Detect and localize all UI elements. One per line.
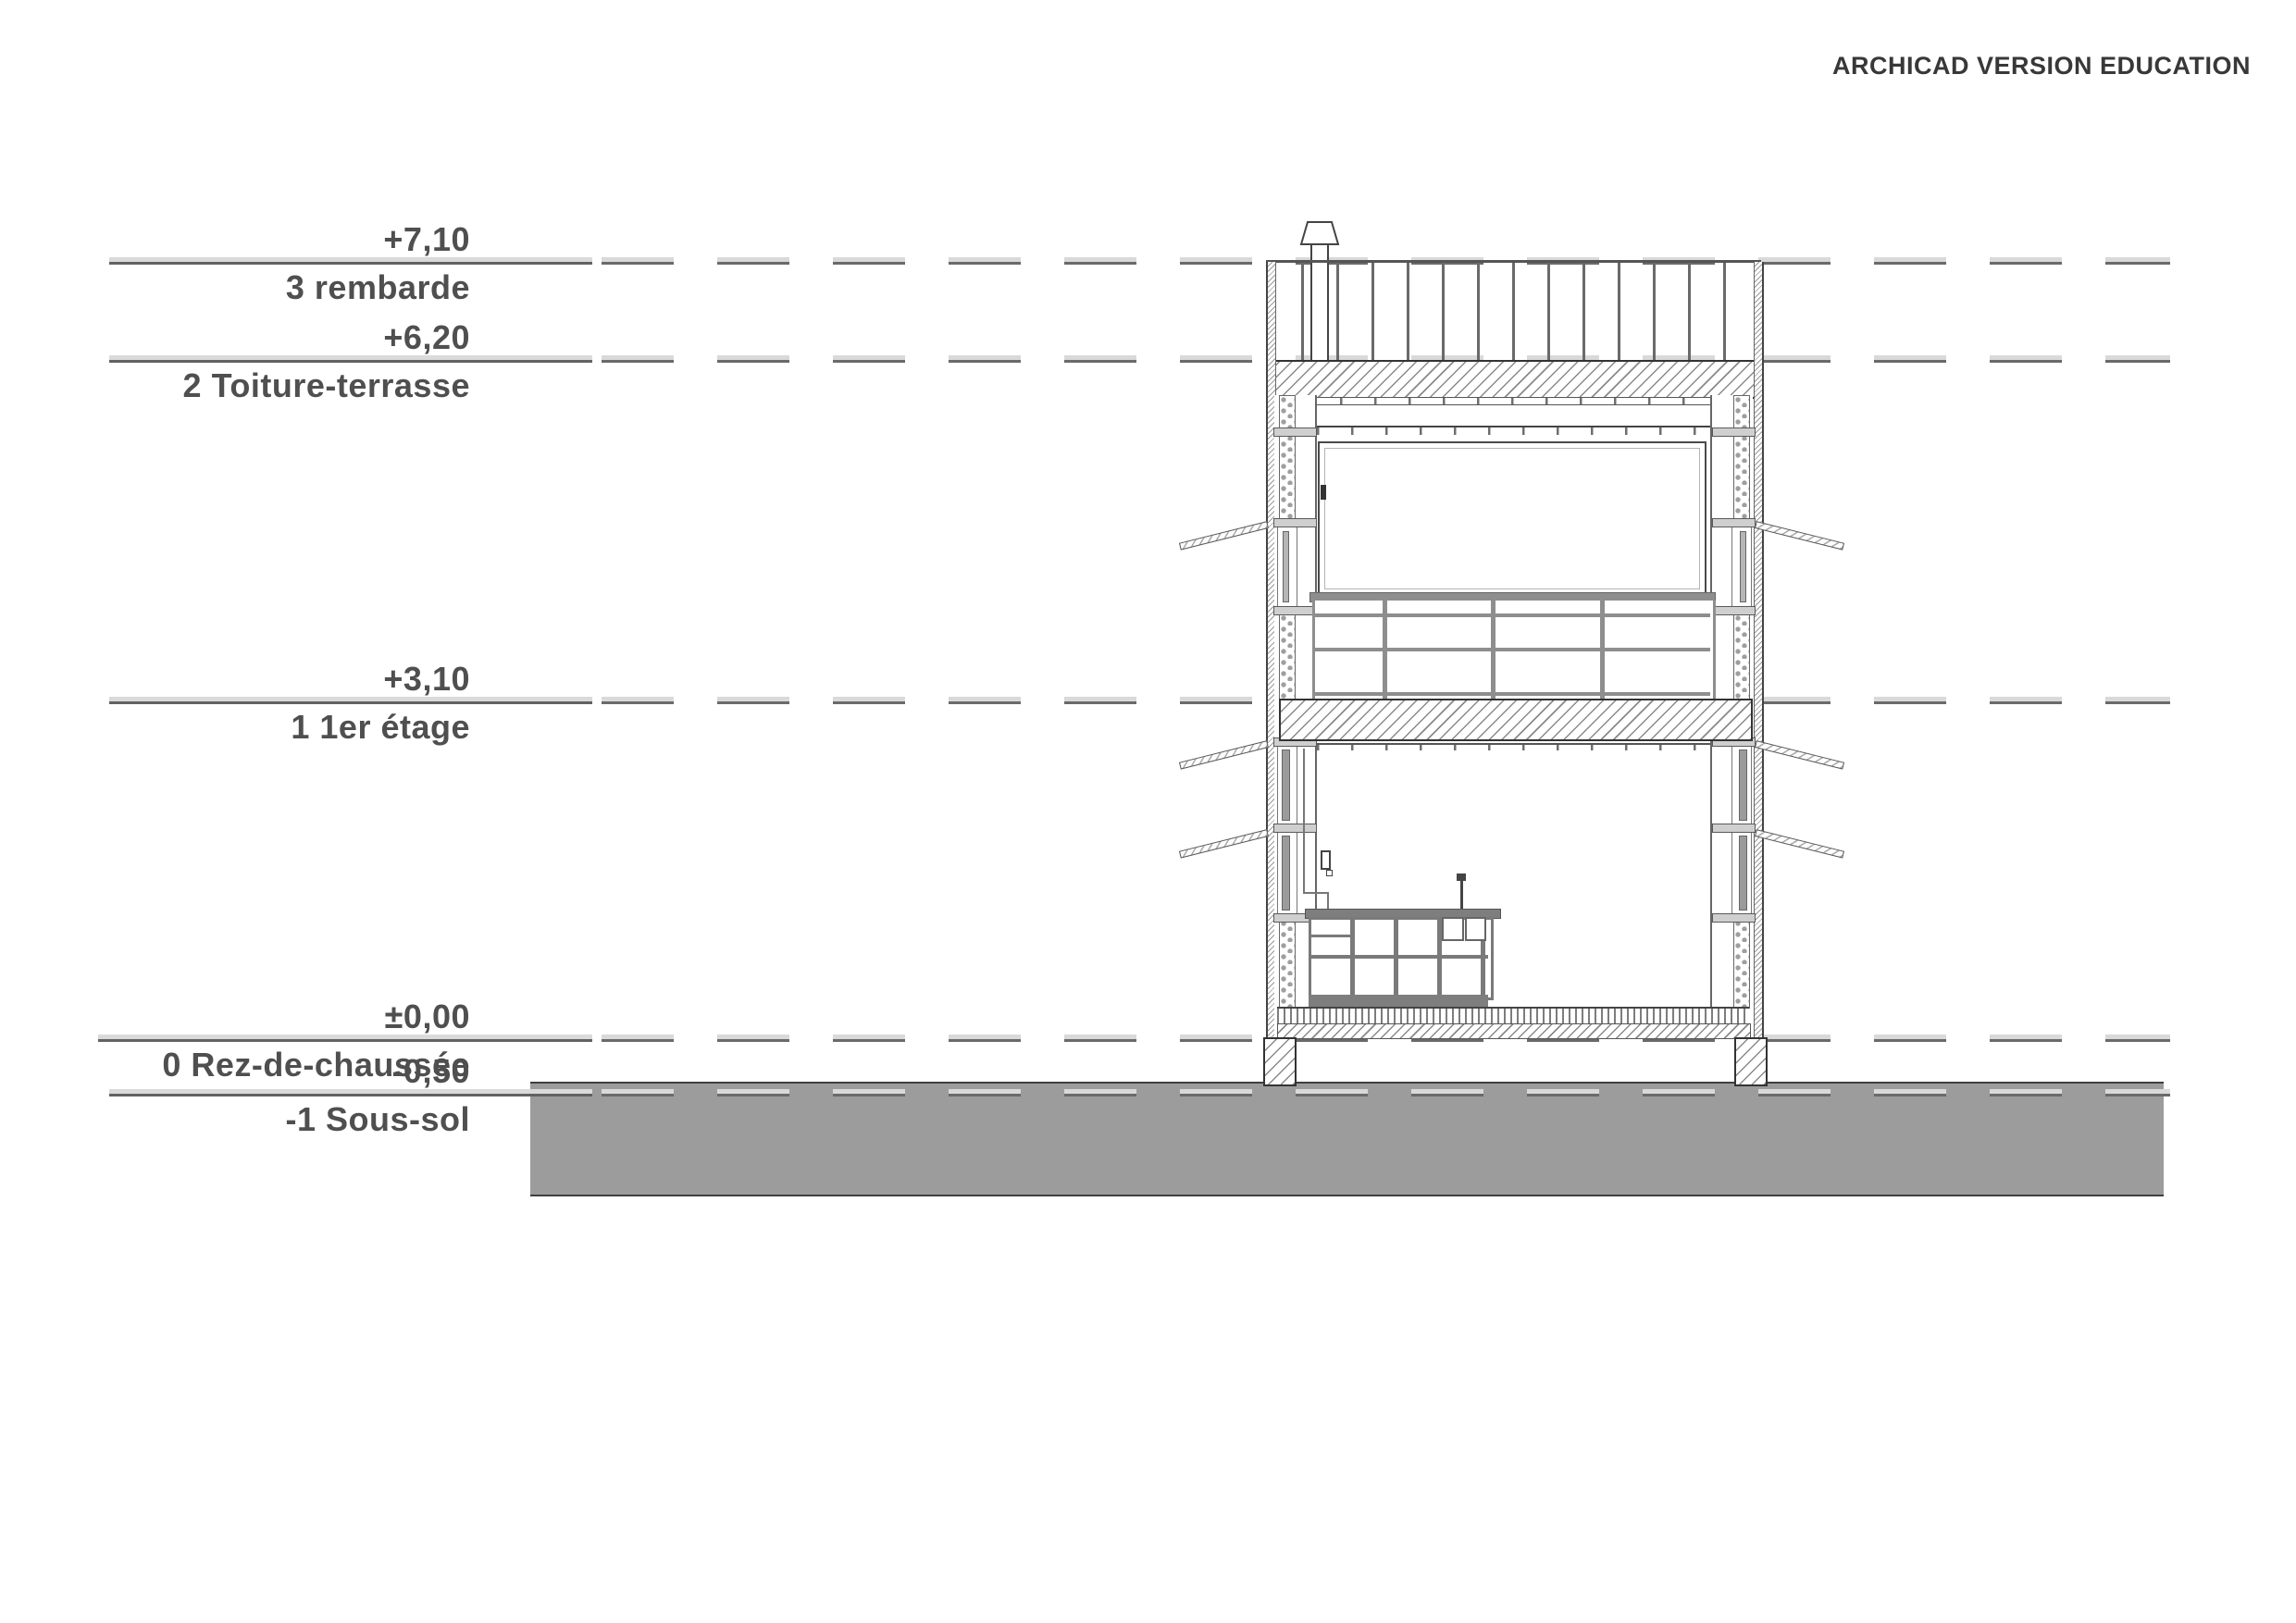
level-line-m050-dashes: [602, 1089, 2170, 1096]
level-value-m050[interactable]: -0,50: [56, 1053, 470, 1090]
level-name-m050[interactable]: -1 Sous-sol: [56, 1101, 470, 1138]
level-name-310[interactable]: 1 1er étage: [56, 709, 470, 746]
sunshade-fin-right-mid[interactable]: [1755, 740, 1844, 769]
upper-window-inner-frame: [1324, 448, 1700, 589]
level-value-000[interactable]: ±0,00: [56, 998, 470, 1035]
roof-slab[interactable]: [1266, 360, 1759, 399]
right-wall-tie-3: [1712, 606, 1756, 615]
kitchen-drawer-line: [1311, 935, 1350, 937]
kitchen-sink-basin-2: [1465, 917, 1486, 941]
level-line-710-solid: [109, 257, 592, 265]
level-value-310[interactable]: +3,10: [56, 661, 470, 698]
left-wall-tie-1: [1273, 427, 1317, 437]
kitchen-cabinet-shelf: [1309, 955, 1488, 959]
footing-pier-right[interactable]: [1734, 1037, 1768, 1086]
balustrade-rail-1: [1312, 613, 1710, 617]
education-watermark: ARCHICAD VERSION EDUCATION: [1832, 52, 2251, 81]
gf-floor-slab[interactable]: [1277, 1023, 1751, 1039]
chimney-cap: [1301, 222, 1338, 244]
kitchen-plinth: [1309, 995, 1488, 1007]
roof-soffit: [1272, 397, 1750, 405]
left-wall-glazing-gf-2-mullion: [1282, 836, 1290, 911]
upper-ceiling: [1317, 426, 1710, 435]
sunshade-fin-left-lower[interactable]: [1179, 829, 1269, 858]
right-wall-tie-6: [1712, 913, 1756, 923]
sunshade-fin-right-lower[interactable]: [1755, 829, 1844, 858]
gf-left-step-drop: [1327, 892, 1329, 909]
upper-window-handle: [1321, 485, 1326, 500]
right-wall-insulation-upper: [1733, 395, 1750, 522]
level-value-710[interactable]: +7,10: [56, 221, 470, 258]
gf-ceiling: [1317, 743, 1710, 750]
section-drawing-canvas[interactable]: ARCHICAD VERSION EDUCATION +7,10 3 remba…: [0, 0, 2296, 1623]
left-wall-tie-3: [1273, 606, 1317, 615]
gf-left-corner-line: [1303, 749, 1305, 893]
level-name-710[interactable]: 3 rembarde: [56, 269, 470, 306]
level-value-620[interactable]: +6,20: [56, 319, 470, 356]
level-name-620[interactable]: 2 Toiture-terrasse: [56, 367, 470, 404]
right-wall-tie-1: [1712, 427, 1756, 437]
first-floor-slab[interactable]: [1279, 699, 1753, 741]
left-wall-insulation-upper: [1279, 395, 1296, 522]
kitchen-faucet: [1460, 881, 1463, 909]
level-line-310-solid: [109, 697, 592, 704]
balustrade-rail-3: [1312, 692, 1710, 696]
level-line-620-solid: [109, 355, 592, 363]
right-wall-tie-5: [1712, 824, 1756, 833]
right-wall-glazing-gf-1-mullion: [1739, 750, 1747, 821]
right-wall-tie-2: [1712, 518, 1756, 527]
gf-left-step-line: [1303, 892, 1329, 894]
kitchen-faucet-head: [1457, 873, 1466, 881]
left-wall-tie-5: [1273, 824, 1317, 833]
balustrade-rail-2: [1312, 648, 1710, 651]
left-wall-window-upper-frame: [1283, 531, 1289, 602]
gf-floor-heating-layer[interactable]: [1277, 1007, 1749, 1025]
left-wall-tie-2: [1273, 518, 1317, 527]
roof-railing-posts[interactable]: [1266, 263, 1764, 360]
right-wall-window-upper-frame: [1740, 531, 1746, 602]
sunshade-fin-right-upper[interactable]: [1755, 521, 1844, 550]
level-line-m050-solid: [109, 1089, 592, 1096]
sunshade-fin-left-mid[interactable]: [1179, 740, 1269, 769]
footing-pier-left[interactable]: [1263, 1037, 1297, 1086]
ground-terrain-mass[interactable]: [530, 1082, 2164, 1196]
left-wall-insulation-lower: [1279, 919, 1296, 1009]
wall-switch-box: [1326, 870, 1333, 876]
sunshade-fin-left-upper[interactable]: [1179, 521, 1269, 550]
left-wall-glazing-gf-1-mullion: [1282, 750, 1290, 821]
wall-switch: [1321, 850, 1331, 870]
right-wall-glazing-gf-2-mullion: [1739, 836, 1747, 911]
right-wall-insulation-lower: [1733, 919, 1750, 1009]
upper-window[interactable]: [1318, 441, 1706, 596]
kitchen-sink-basin-1: [1442, 917, 1464, 941]
level-line-000-solid: [98, 1035, 592, 1042]
